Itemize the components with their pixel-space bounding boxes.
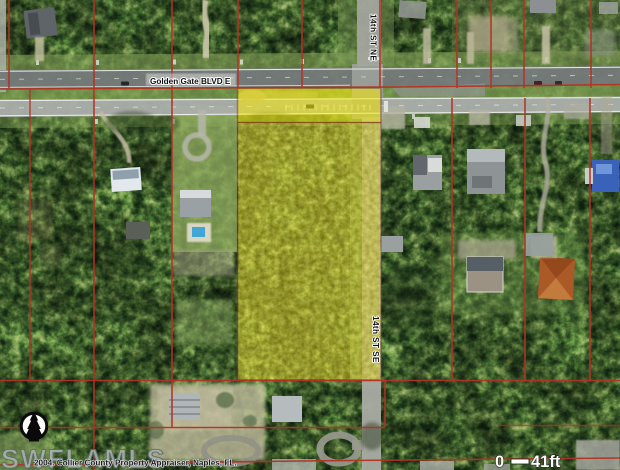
svg-text:2004. Collier County Property: 2004. Collier County Property Appraiser,… (34, 459, 237, 468)
svg-text:14th ST NE: 14th ST NE (369, 14, 379, 61)
svg-text:14th ST SE: 14th ST SE (371, 316, 381, 363)
svg-text:Golden Gate BLVD E: Golden Gate BLVD E (150, 77, 231, 86)
svg-text:41ft: 41ft (531, 453, 561, 470)
svg-text:0: 0 (495, 453, 504, 470)
